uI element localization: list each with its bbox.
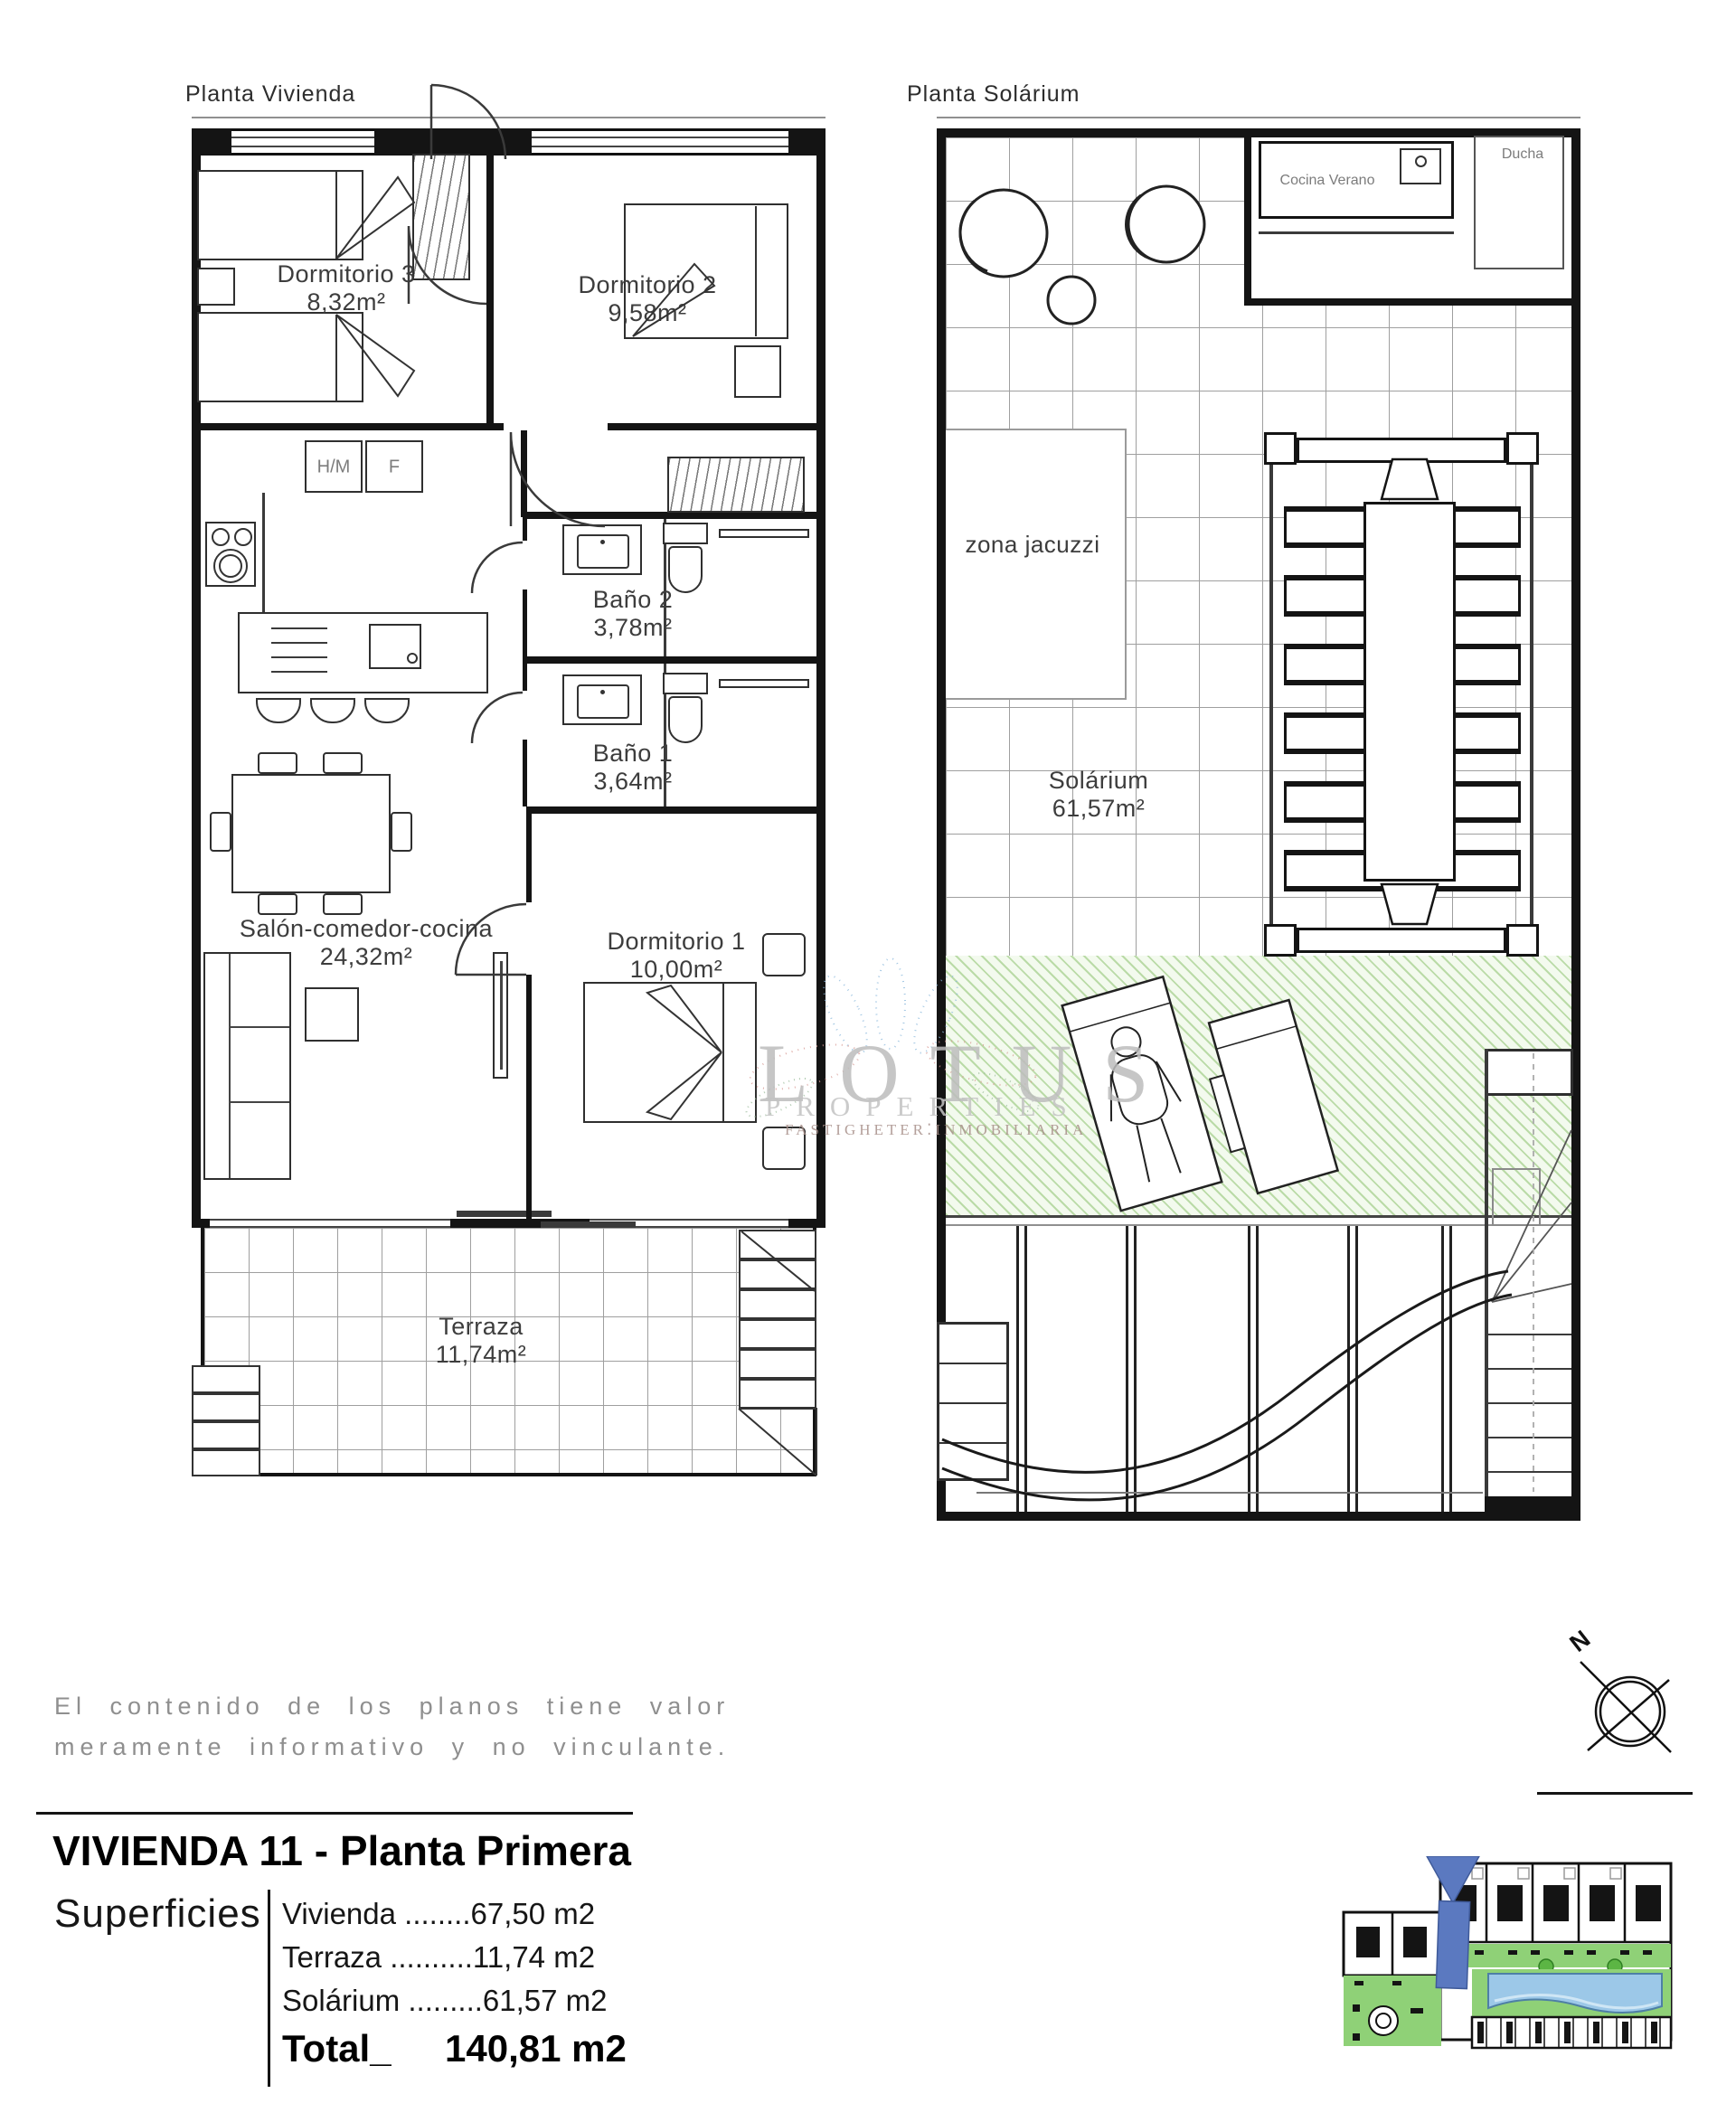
pergola-post-br (1506, 924, 1539, 957)
louver-block (937, 1322, 1009, 1481)
summer-kitchen-sink (1400, 148, 1441, 184)
stair-tread-2 (1488, 1368, 1571, 1370)
pergola-beam-top (1297, 438, 1506, 463)
solarium-wall-left (937, 128, 946, 1521)
surface-total-label: Total_ (282, 2027, 392, 2070)
surfaces-divider (268, 1890, 270, 2087)
surface-row-solarium: Solárium .........61,57 m2 (282, 1984, 608, 2018)
pergola-post-tr (1506, 432, 1539, 465)
mullion-2 (1126, 1226, 1137, 1512)
surface-total-value: 140,81 m2 (445, 2027, 627, 2070)
mullion-5 (1441, 1226, 1452, 1512)
watermark-tagline: FASTIGHETER⁚INMOBILIARIA (785, 1121, 1087, 1139)
stair-tread-1 (1488, 1334, 1571, 1335)
summer-kitchen-label: Cocina Verano (1280, 173, 1375, 189)
label-jacuzzi: zona jacuzzi (965, 532, 1099, 559)
stair-wall-left (1485, 1049, 1488, 1512)
pergola-rail-right (1530, 465, 1533, 924)
pergola-table (1363, 502, 1456, 882)
footer-right-line (1537, 1792, 1693, 1795)
mullion-4 (1347, 1226, 1358, 1512)
lower-guide-line (976, 1492, 1483, 1494)
stair-tread-3 (1488, 1402, 1571, 1404)
sheet-title: VIVIENDA 11 - Planta Primera (52, 1826, 631, 1875)
site-plan-thumbnail (1336, 1856, 1680, 2055)
title-block-topline (36, 1812, 633, 1815)
mullion-3 (1248, 1226, 1259, 1512)
stair-landing (1485, 1049, 1573, 1096)
solarium-wall-bottom (937, 1512, 1580, 1521)
jacuzzi-zone (946, 429, 1127, 700)
service-block-left-wall (1244, 128, 1251, 306)
stair-tread-5 (1488, 1471, 1571, 1473)
surface-row-vivienda: Vivienda ........67,50 m2 (282, 1897, 595, 1931)
summer-kitchen-shelf-line (1259, 231, 1454, 234)
pergola-post-bl (1264, 924, 1297, 957)
solarium-lower-line (946, 1224, 1571, 1226)
pergola-beam-bottom (1297, 928, 1506, 953)
disclaimer-line-2: meramente informativo y no vinculante. (54, 1733, 730, 1761)
mullion-1 (1016, 1226, 1027, 1512)
disclaimer-line-1: El contenido de los planos tiene valor (54, 1693, 730, 1721)
surfaces-label: Superficies (54, 1891, 261, 1937)
pergola-rail-left (1269, 465, 1273, 924)
pergola-post-tl (1264, 432, 1297, 465)
watermark-properties: PROPERTIES (765, 1090, 1082, 1123)
floorplan-sheet: Planta Vivienda (0, 0, 1736, 2122)
surface-row-terraza: Terraza ..........11,74 m2 (282, 1940, 595, 1975)
service-block-bottom-wall (1244, 298, 1571, 306)
stair-bottom-wall (1485, 1496, 1573, 1512)
plan-solarium-title: Planta Solárium (907, 81, 1080, 108)
solarium-wall-right (1571, 128, 1580, 1521)
shower-label: Ducha (1502, 146, 1543, 163)
stair-inner-box (1492, 1168, 1541, 1226)
label-solarium: Solárium61,57m² (1049, 767, 1149, 823)
solarium-slab-edge (937, 117, 1580, 118)
stair-tread-4 (1488, 1437, 1571, 1438)
